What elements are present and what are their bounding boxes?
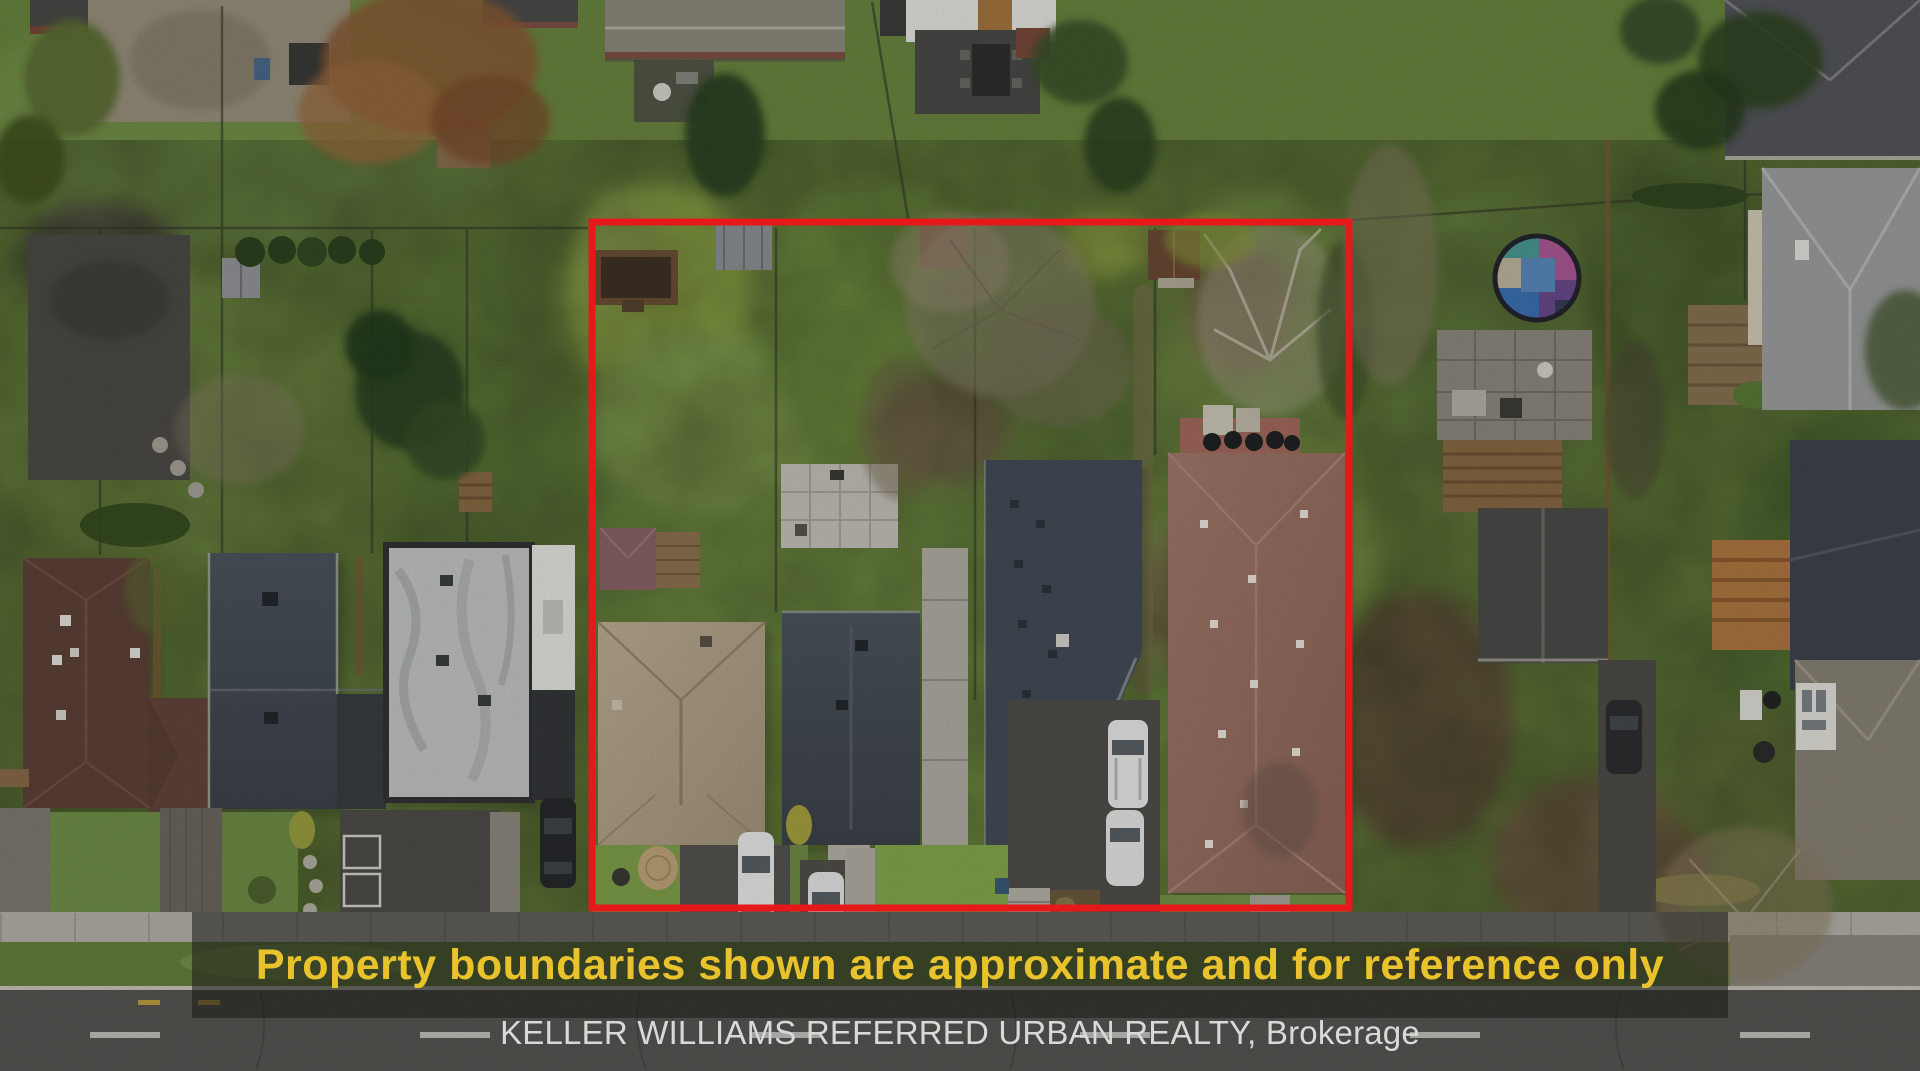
brokerage-text: KELLER WILLIAMS REFERRED URBAN REALTY, B…: [500, 1014, 1420, 1051]
disclaimer-text: Property boundaries shown are approximat…: [256, 941, 1664, 989]
aerial-photo-stage: Property boundaries shown are approximat…: [0, 0, 1920, 1071]
aerial-scene: Property boundaries shown are approximat…: [0, 0, 1920, 1071]
